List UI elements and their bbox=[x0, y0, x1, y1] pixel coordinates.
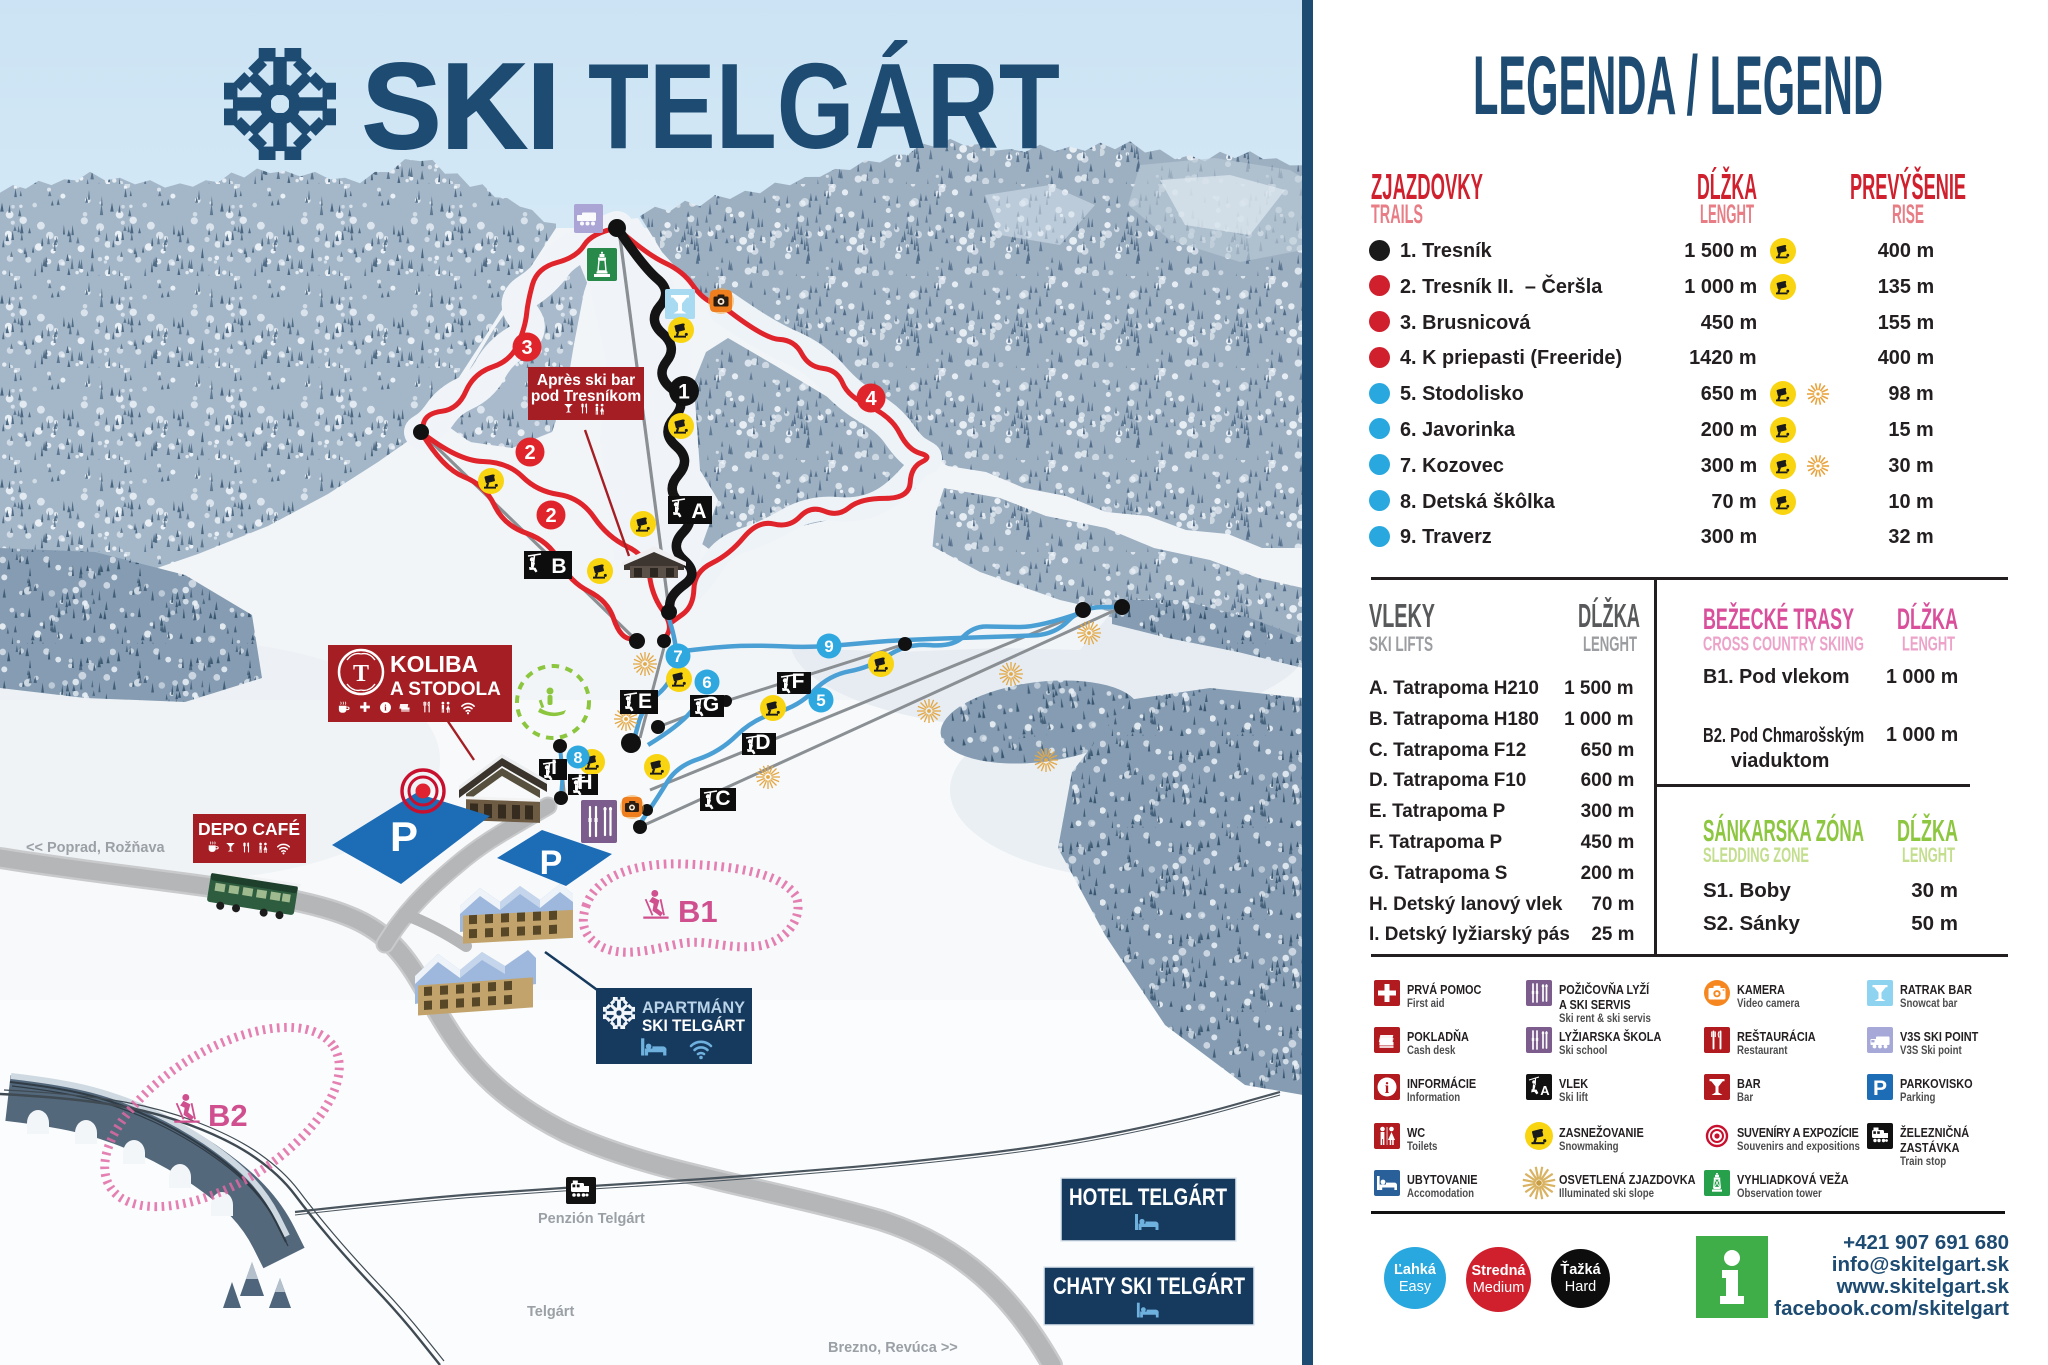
svg-text:APARTMÁNY: APARTMÁNY bbox=[642, 998, 746, 1017]
svg-text:Telgárt: Telgárt bbox=[527, 1304, 574, 1320]
svg-text:P: P bbox=[540, 844, 563, 882]
svg-text:LENGHT: LENGHT bbox=[1583, 633, 1637, 656]
svg-text:RISE: RISE bbox=[1892, 199, 1924, 229]
svg-text:TELGÁRT: TELGÁRT bbox=[588, 38, 1060, 174]
svg-text:SKI TELGÁRT: SKI TELGÁRT bbox=[642, 1016, 746, 1035]
svg-text:DĹŽKA: DĹŽKA bbox=[1897, 602, 1958, 636]
svg-text:B1: B1 bbox=[678, 894, 718, 929]
svg-text:HOTEL TELGÁRT: HOTEL TELGÁRT bbox=[1069, 1183, 1227, 1211]
svg-text:Après ski bar: Après ski bar bbox=[537, 372, 635, 389]
svg-text:B2: B2 bbox=[208, 1098, 248, 1133]
svg-text:A STODOLA: A STODOLA bbox=[390, 679, 501, 700]
svg-text:BEŽECKÉ TRASY: BEŽECKÉ TRASY bbox=[1703, 602, 1854, 636]
svg-text:P: P bbox=[1873, 1077, 1887, 1100]
svg-text:SKI: SKI bbox=[362, 38, 560, 174]
svg-text:Penzión Telgárt: Penzión Telgárt bbox=[538, 1211, 645, 1227]
svg-text:TRAILS: TRAILS bbox=[1371, 199, 1423, 229]
svg-text:KOLIBA: KOLIBA bbox=[390, 651, 478, 677]
svg-text:DEPO CAFÉ: DEPO CAFÉ bbox=[198, 818, 300, 839]
svg-text:CROSS COUNTRY SKIING: CROSS COUNTRY SKIING bbox=[1703, 634, 1864, 656]
svg-text:A: A bbox=[1540, 1083, 1550, 1098]
svg-text:SLEDDING ZONE: SLEDDING ZONE bbox=[1703, 844, 1809, 867]
svg-text:DĹŽKA: DĹŽKA bbox=[1578, 597, 1640, 635]
svg-text:LEGENDA / LEGEND: LEGENDA / LEGEND bbox=[1473, 38, 1883, 132]
svg-text:LENGHT: LENGHT bbox=[1700, 199, 1754, 229]
svg-text:Brezno, Revúca >>: Brezno, Revúca >> bbox=[828, 1340, 958, 1356]
svg-text:i: i bbox=[1385, 1080, 1390, 1097]
svg-text:T: T bbox=[353, 661, 369, 687]
svg-text:pod Tresníkom: pod Tresníkom bbox=[531, 388, 641, 405]
svg-text:P: P bbox=[390, 813, 418, 860]
svg-text:<< Poprad, Rožňava: << Poprad, Rožňava bbox=[26, 840, 166, 856]
svg-text:DĹŽKA: DĹŽKA bbox=[1897, 812, 1958, 848]
svg-text:LENGHT: LENGHT bbox=[1902, 844, 1955, 867]
svg-text:CHATY SKI TELGÁRT: CHATY SKI TELGÁRT bbox=[1053, 1272, 1245, 1300]
svg-text:SKI LIFTS: SKI LIFTS bbox=[1369, 633, 1433, 656]
svg-text:LENGHT: LENGHT bbox=[1902, 634, 1955, 656]
svg-text:SÁNKARSKA ZÓNA: SÁNKARSKA ZÓNA bbox=[1703, 812, 1864, 848]
svg-text:VLEKY: VLEKY bbox=[1369, 598, 1435, 635]
